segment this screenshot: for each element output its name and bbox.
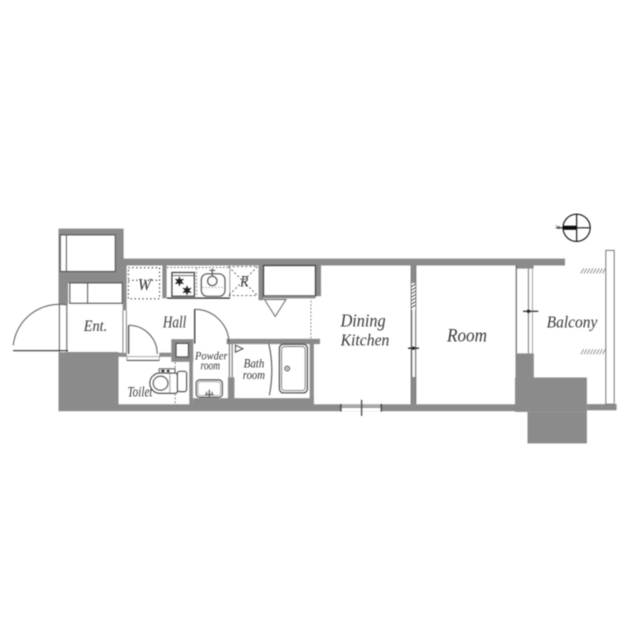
svg-text:W: W <box>138 275 153 294</box>
svg-text:Dining: Dining <box>340 310 386 330</box>
svg-text:room: room <box>201 357 221 372</box>
svg-text:Balcony: Balcony <box>547 312 598 331</box>
svg-text:Hall: Hall <box>162 312 187 331</box>
svg-text:room: room <box>243 368 265 382</box>
svg-text:N: N <box>554 224 561 230</box>
svg-text:Toilet: Toilet <box>128 384 154 400</box>
svg-text:R: R <box>239 274 248 291</box>
svg-text:Kitchen: Kitchen <box>340 331 390 350</box>
svg-text:Room: Room <box>446 326 487 346</box>
svg-text:Ent.: Ent. <box>83 318 107 335</box>
